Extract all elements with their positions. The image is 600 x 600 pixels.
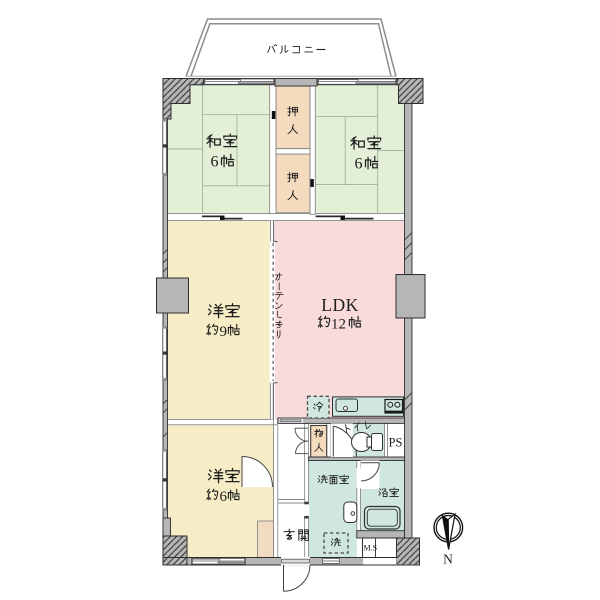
svg-text:N: N	[443, 552, 453, 567]
svg-text:PS: PS	[389, 436, 403, 450]
svg-text:6: 6	[220, 489, 228, 505]
svg-text:M.S: M.S	[364, 544, 378, 553]
svg-text:6: 6	[211, 154, 219, 171]
svg-text:6: 6	[355, 156, 363, 173]
svg-text:LDK: LDK	[321, 295, 358, 315]
svg-text:9: 9	[220, 324, 228, 340]
svg-text:12: 12	[331, 317, 346, 333]
